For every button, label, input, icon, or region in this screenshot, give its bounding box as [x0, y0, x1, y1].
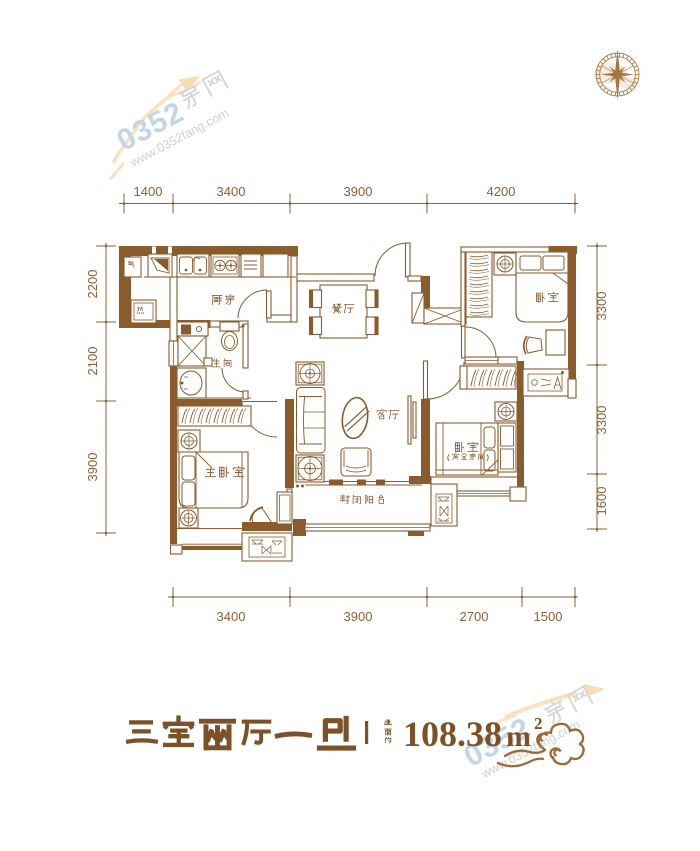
svg-text:2: 2 — [534, 714, 543, 733]
svg-text:3400: 3400 — [217, 609, 246, 624]
svg-text:4200: 4200 — [487, 184, 516, 199]
svg-text:2100: 2100 — [85, 347, 100, 376]
svg-text:108.38: 108.38 — [403, 714, 502, 754]
svg-text:2200: 2200 — [85, 270, 100, 299]
svg-text:3400: 3400 — [217, 184, 246, 199]
svg-text:3900: 3900 — [85, 453, 100, 482]
svg-text:2700: 2700 — [460, 609, 489, 624]
svg-text:m: m — [506, 720, 531, 753]
svg-text:1400: 1400 — [134, 184, 163, 199]
svg-text:3300: 3300 — [594, 292, 609, 321]
svg-text:1600: 1600 — [594, 487, 609, 516]
svg-text:3900: 3900 — [344, 609, 373, 624]
svg-text:3900: 3900 — [344, 184, 373, 199]
svg-text:1500: 1500 — [534, 609, 563, 624]
svg-text:3300: 3300 — [594, 406, 609, 435]
